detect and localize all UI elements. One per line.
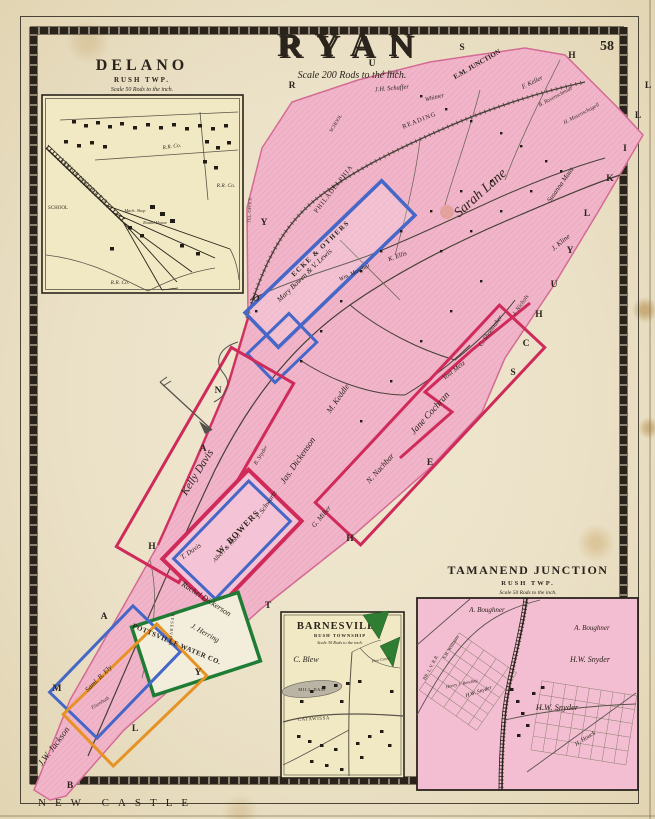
edge-letter-east-8: L: [635, 111, 641, 121]
tamanend-scale: Scale 50 Rods to the inch.: [499, 590, 556, 596]
new-castle-label: NEW CASTLE: [38, 797, 197, 809]
delano-label-mach-shop: Mach. Shop: [124, 208, 147, 213]
barnesville-scale: Scale 30 Rods to the inch.: [317, 640, 363, 645]
foxing-stain: [440, 205, 454, 219]
edge-letter-north-2: S: [459, 43, 464, 53]
tamanend-title: TAMANEND JUNCTION: [448, 563, 609, 577]
edge-letter-north-0: R: [289, 81, 296, 91]
delano-title: DELANO: [96, 57, 188, 74]
delano-label-round-house: Round House: [142, 220, 167, 225]
edge-letter-east-4: Y: [567, 246, 574, 256]
tamanend-subtitle: RUSH TWP.: [501, 580, 554, 587]
edge-letter-east-3: U: [551, 280, 558, 290]
edge-letter-east-0: S: [510, 368, 515, 378]
edge-letter-east-6: K: [606, 174, 614, 184]
edge-letter-east-9: L: [645, 81, 651, 91]
inset-tamanend-junction: TAMANEND JUNCTION RUSH TWP. Scale 50 Rod…: [417, 563, 638, 790]
edge-letter-east-1: C: [523, 339, 530, 349]
edge-letter-south-4: H: [346, 534, 354, 544]
label-tel-office: TEL. OFFICE: [247, 197, 253, 223]
edge-letter-south-5: E: [427, 458, 433, 468]
tamanend-label-a-boughner-2: A. Boughner: [573, 624, 610, 632]
edge-letter-south-3: T: [265, 601, 272, 611]
atlas-map-canvas: E.M. JUNCTION A. Brell J.H. Schaffer Whi…: [0, 0, 655, 819]
tamanend-label-a-boughner-1: A. Boughner: [468, 606, 505, 614]
edge-letter-west-5: O: [252, 294, 259, 304]
page-number: 58: [600, 39, 614, 54]
edge-letter-west-3: A: [200, 444, 207, 454]
delano-scale: Scale 50 Rods to the inch.: [111, 87, 173, 93]
barnesville-label-c-blew: C. Blew: [293, 655, 319, 664]
tamanend-label-hw-snyder-3: H.W. Snyder: [535, 702, 579, 712]
tamanend-label-hw-snyder-1: H.W. Snyder: [569, 655, 611, 664]
edge-letter-south-2: Y: [195, 668, 202, 678]
delano-label-rr-co-2: R.R. Co.: [216, 183, 236, 189]
edge-letter-south-0: B: [67, 781, 74, 791]
delano-label-school: SCHOOL: [48, 206, 68, 211]
inset-barnesville: BARNESVILLE RUSH TOWNSHIP Scale 30 Rods …: [281, 611, 404, 778]
page-title-scale: Scale 200 Rods to the inch.: [298, 70, 407, 81]
delano-subtitle: RUSH TWP.: [114, 76, 170, 84]
edge-letter-west-2: H: [148, 542, 156, 552]
page-title: RYAN: [277, 27, 427, 64]
barnesville-label-mill-dam: MILL DAM: [298, 687, 325, 692]
edge-letter-south-1: L: [132, 724, 138, 734]
edge-letter-west-6: Y: [261, 218, 268, 228]
edge-letter-west-1: A: [101, 612, 108, 622]
edge-letter-west-4: N: [215, 386, 222, 396]
edge-letter-west-0: M: [53, 684, 62, 694]
edge-letter-east-2: H: [535, 310, 543, 320]
edge-letter-north-3: H: [568, 51, 576, 61]
delano-label-rr-co-3: R.R. Co.: [110, 280, 130, 286]
inset-delano: DELANO RUSH TWP. Scale 50 Rods to the in…: [42, 57, 243, 293]
edge-letter-east-7: I: [623, 144, 627, 154]
delano-panel: [42, 95, 243, 293]
edge-letter-east-5: L: [584, 209, 590, 219]
barnesville-subtitle: RUSH TOWNSHIP: [314, 633, 366, 638]
